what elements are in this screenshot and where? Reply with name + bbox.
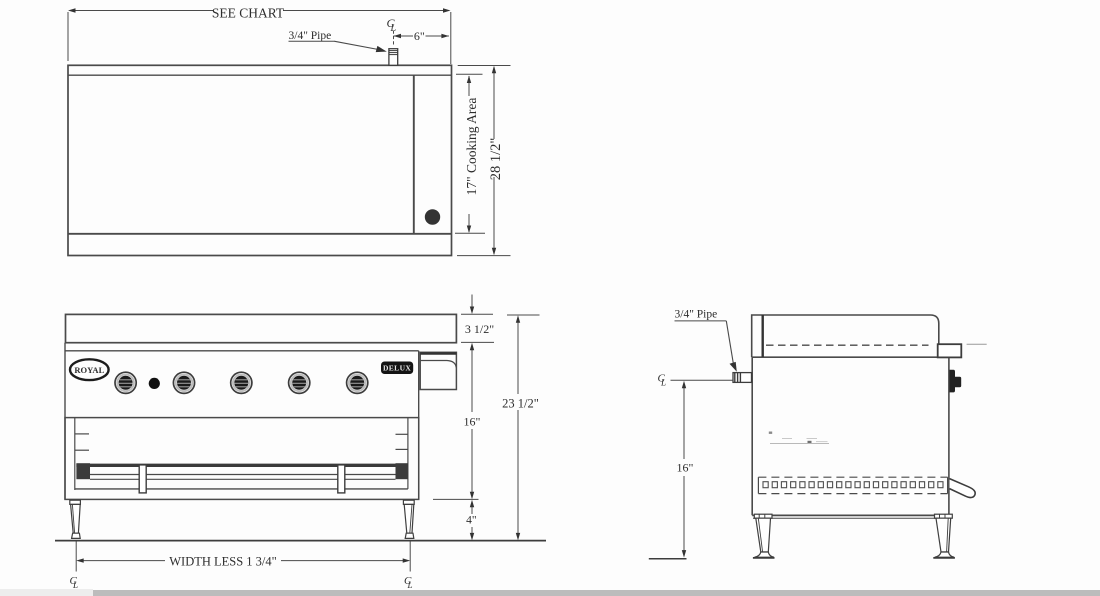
svg-text:3 1/2": 3 1/2" <box>465 322 494 336</box>
svg-text:L: L <box>72 580 78 590</box>
svg-text:DELUX: DELUX <box>383 364 411 373</box>
svg-text:3/4" Pipe: 3/4" Pipe <box>289 30 332 42</box>
svg-text:ROYAL: ROYAL <box>74 365 104 375</box>
svg-text:L: L <box>407 580 413 590</box>
svg-text:28 1/2": 28 1/2" <box>488 138 504 181</box>
svg-text:L: L <box>660 378 666 388</box>
svg-text:16": 16" <box>464 415 481 429</box>
svg-text:SEE CHART: SEE CHART <box>212 6 285 21</box>
svg-text:16": 16" <box>677 461 694 475</box>
svg-text:WIDTH LESS 1 3/4": WIDTH LESS 1 3/4" <box>169 555 277 569</box>
svg-text:17" Cooking Area: 17" Cooking Area <box>464 98 479 196</box>
svg-text:6": 6" <box>414 29 425 43</box>
svg-text:3/4" Pipe: 3/4" Pipe <box>675 309 718 321</box>
svg-text:23 1/2": 23 1/2" <box>502 397 539 411</box>
svg-text:4": 4" <box>466 515 476 527</box>
